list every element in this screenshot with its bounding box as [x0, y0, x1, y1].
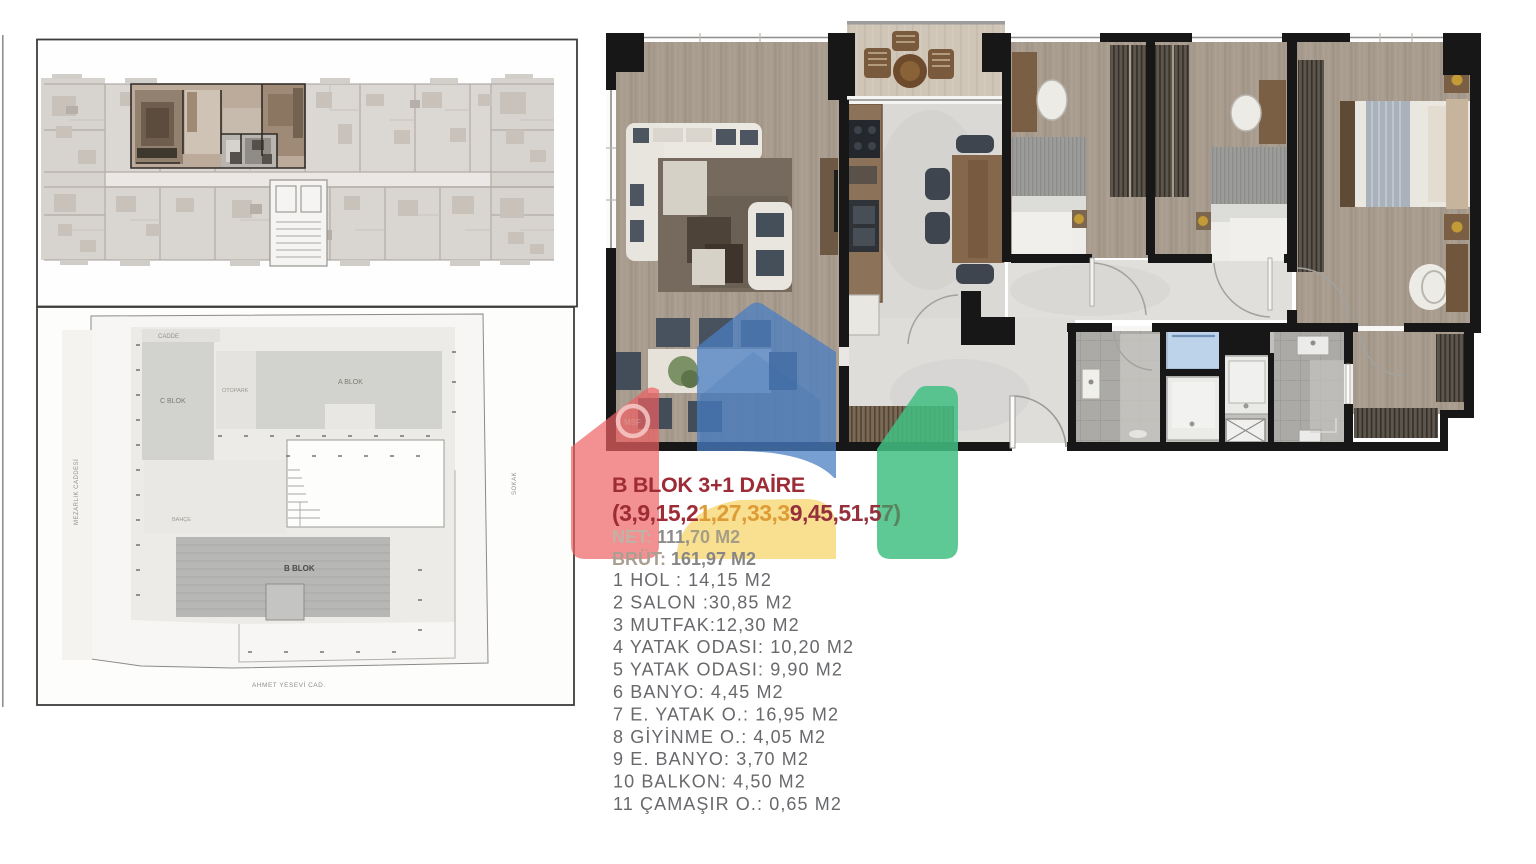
- svg-text:B BLOK: B BLOK: [284, 564, 315, 573]
- svg-text:B BLOK 3+1 DAİRE: B BLOK 3+1 DAİRE: [612, 473, 805, 497]
- svg-text:AHMET YESEVİ CAD.: AHMET YESEVİ CAD.: [252, 680, 326, 689]
- svg-text:NET: 111,70 M2: NET: 111,70 M2: [612, 527, 740, 547]
- svg-text:(3,9,15,21,27,33,39,45,51,57): (3,9,15,21,27,33,39,45,51,57): [612, 500, 901, 526]
- svg-text:2 SALON :30,85 M2: 2 SALON :30,85 M2: [613, 592, 793, 612]
- svg-text:CADDE: CADDE: [158, 334, 179, 340]
- svg-text:BRÜT: 161,97 M2: BRÜT: 161,97 M2: [612, 549, 756, 569]
- svg-text:MEZARLIK CADDESİ: MEZARLIK CADDESİ: [73, 459, 80, 525]
- svg-text:C BLOK: C BLOK: [160, 398, 186, 405]
- svg-text:10 BALKON: 4,50 M2: 10 BALKON: 4,50 M2: [613, 772, 806, 792]
- svg-text:A BLOK: A BLOK: [338, 379, 363, 386]
- svg-text:3 MUTFAK:12,30 M2: 3 MUTFAK:12,30 M2: [613, 615, 800, 635]
- svg-text:4 YATAK ODASI: 10,20 M2: 4 YATAK ODASI: 10,20 M2: [613, 637, 854, 657]
- svg-text:MSF: MSF: [624, 418, 641, 427]
- svg-text:BAHÇE: BAHÇE: [172, 517, 191, 523]
- svg-text:7 E. YATAK O.: 16,95 M2: 7 E. YATAK O.: 16,95 M2: [613, 704, 839, 724]
- svg-text:9 E. BANYO: 3,70 M2: 9 E. BANYO: 3,70 M2: [613, 749, 809, 769]
- svg-text:11 ÇAMAŞIR O.: 0,65 M2: 11 ÇAMAŞIR O.: 0,65 M2: [613, 794, 842, 814]
- svg-text:8 GİYİNME O.: 4,05 M2: 8 GİYİNME O.: 4,05 M2: [613, 727, 826, 747]
- svg-text:1 HOL : 14,15 M2: 1 HOL : 14,15 M2: [613, 570, 772, 590]
- svg-text:6 BANYO: 4,45 M2: 6 BANYO: 4,45 M2: [613, 682, 784, 702]
- svg-text:5 YATAK ODASI: 9,90 M2: 5 YATAK ODASI: 9,90 M2: [613, 660, 843, 680]
- svg-text:OTOPARK: OTOPARK: [222, 388, 249, 394]
- svg-text:SOKAK: SOKAK: [512, 472, 518, 495]
